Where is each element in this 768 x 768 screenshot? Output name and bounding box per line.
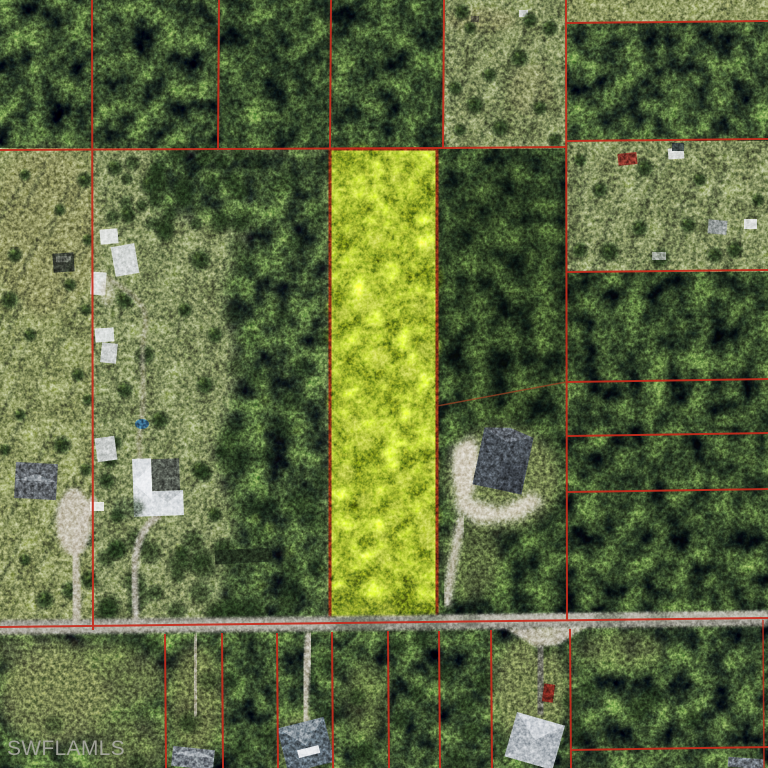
svg-text:SWFLAMLS: SWFLAMLS xyxy=(7,737,125,760)
